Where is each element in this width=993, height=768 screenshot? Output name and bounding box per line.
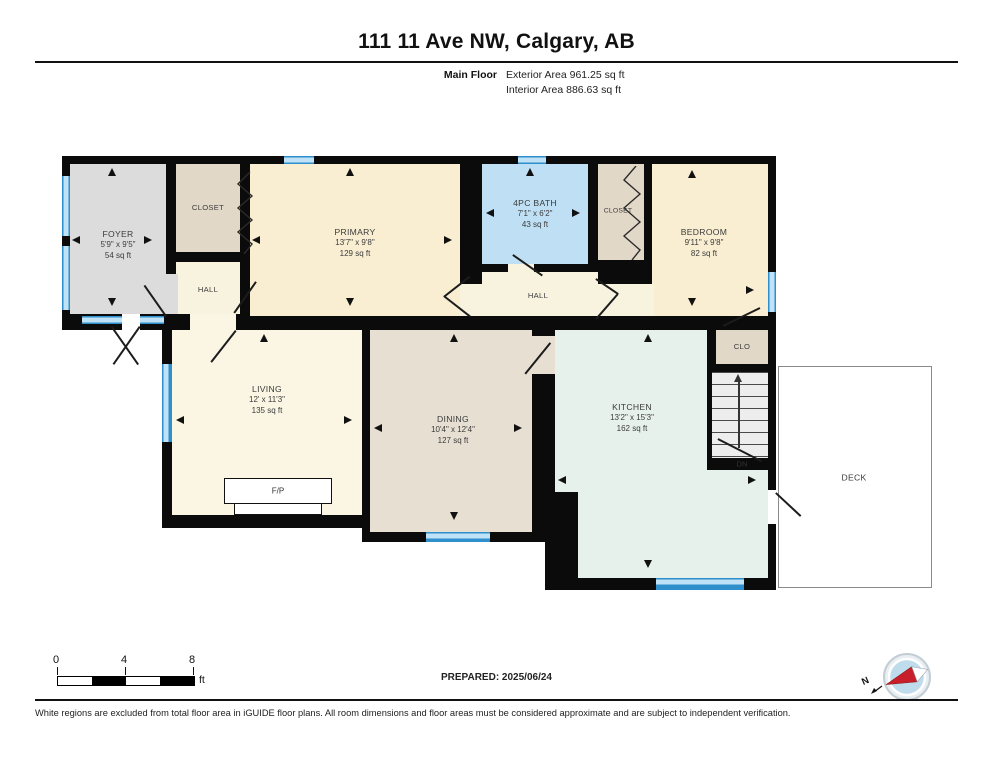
dimension-arrow bbox=[72, 236, 80, 244]
window bbox=[518, 156, 546, 164]
room-label-kitchen: KITCHEN 13'2" x 15'3" 162 sq ft bbox=[610, 402, 654, 434]
dimension-arrow bbox=[108, 168, 116, 176]
window bbox=[140, 316, 164, 324]
window bbox=[656, 578, 744, 590]
window bbox=[62, 176, 70, 236]
fireplace-hearth bbox=[234, 503, 322, 515]
door-opening bbox=[164, 274, 178, 314]
stairs-down-label: DN bbox=[737, 460, 748, 469]
dimension-arrow bbox=[572, 209, 580, 217]
dimension-arrow bbox=[144, 236, 152, 244]
stairs bbox=[712, 372, 768, 458]
dimension-arrow bbox=[644, 334, 652, 342]
dimension-arrow bbox=[748, 476, 756, 484]
room-label-deck: DECK bbox=[841, 472, 866, 483]
scale-tick-8: 8 bbox=[189, 654, 195, 666]
room-label-bath: 4PC BATH 7'1" x 6'2" 43 sq ft bbox=[513, 198, 557, 230]
scale-tick-0: 0 bbox=[53, 654, 59, 666]
dimension-arrow bbox=[344, 416, 352, 424]
room-label-clo: CLO bbox=[734, 342, 751, 352]
fireplace-label: F/P bbox=[272, 487, 284, 496]
dimension-arrow bbox=[444, 236, 452, 244]
door-opening bbox=[598, 284, 654, 316]
window bbox=[82, 316, 122, 324]
dimension-arrow bbox=[176, 416, 184, 424]
dimension-arrow bbox=[644, 560, 652, 568]
dimension-arrow bbox=[374, 424, 382, 432]
room-label-primary: PRIMARY 13'7" x 9'8" 129 sq ft bbox=[334, 227, 375, 259]
room-label-closet-top: CLOSET bbox=[192, 203, 224, 213]
floorplan-page: 111 11 Ave NW, Calgary, AB Main Floor Ex… bbox=[0, 0, 993, 768]
door-opening bbox=[768, 490, 776, 524]
dimension-arrow bbox=[514, 424, 522, 432]
window bbox=[284, 156, 314, 164]
room-label-hall-left: HALL bbox=[198, 285, 218, 295]
dimension-arrow bbox=[688, 298, 696, 306]
room-label-bedroom: BEDROOM 9'11" x 9'8" 82 sq ft bbox=[681, 227, 728, 259]
prepared-date: PREPARED: 2025/06/24 bbox=[0, 672, 993, 683]
dimension-arrow bbox=[526, 168, 534, 176]
dimension-arrow bbox=[260, 334, 268, 342]
door-opening bbox=[532, 336, 555, 374]
room-label-hall-center: HALL bbox=[528, 291, 548, 301]
stairs-direction-line bbox=[738, 382, 740, 448]
window bbox=[426, 532, 490, 542]
window bbox=[768, 272, 776, 312]
window bbox=[162, 364, 172, 442]
dimension-arrow bbox=[450, 334, 458, 342]
scale-tick-4: 4 bbox=[121, 654, 127, 666]
disclaimer-text: White regions are excluded from total fl… bbox=[35, 708, 791, 718]
room-label-living: LIVING 12' x 11'3" 135 sq ft bbox=[249, 384, 285, 416]
dimension-arrow bbox=[688, 170, 696, 178]
room-kitchen bbox=[578, 492, 707, 578]
room-label-foyer: FOYER 5'9" x 9'5" 54 sq ft bbox=[101, 229, 136, 261]
room-label-dining: DINING 10'4" x 12'4" 127 sq ft bbox=[431, 414, 475, 446]
door-opening bbox=[190, 314, 236, 330]
floor-plan: DN F/P FOYER 5'9" x 9'5" bbox=[0, 0, 993, 768]
dimension-arrow bbox=[346, 168, 354, 176]
compass-north-arrow bbox=[870, 684, 884, 696]
window bbox=[62, 246, 70, 310]
room-label-closet-right: CLOSET bbox=[604, 208, 632, 217]
dimension-arrow bbox=[558, 476, 566, 484]
dimension-arrow bbox=[450, 512, 458, 520]
dimension-arrow bbox=[346, 298, 354, 306]
stairs-up-arrow bbox=[734, 374, 742, 382]
dimension-arrow bbox=[486, 209, 494, 217]
room-kitchen bbox=[707, 470, 768, 578]
dimension-arrow bbox=[108, 298, 116, 306]
footer-divider bbox=[35, 699, 958, 701]
dimension-arrow bbox=[746, 286, 754, 294]
dimension-arrow bbox=[252, 236, 260, 244]
